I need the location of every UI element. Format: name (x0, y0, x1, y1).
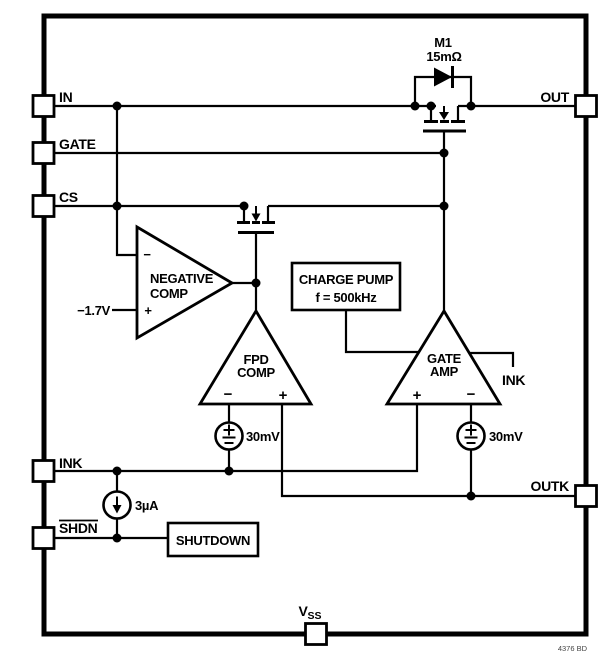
m1-body-arrow-head (439, 112, 449, 120)
gate-amp-label-2: AMP (430, 364, 459, 379)
shutdown-label: SHUTDOWN (176, 533, 250, 548)
fpd-comp-minus-sign: − (224, 386, 233, 403)
pin-shdn-pad (33, 528, 54, 549)
schematic-canvas: IN GATE CS INK SHDN OUT OUTK VSS M1 15mΩ… (0, 0, 611, 658)
fpd-comp-plus-sign: + (279, 387, 288, 404)
m1-resistance: 15mΩ (426, 49, 461, 64)
m1-designator: M1 (434, 35, 452, 50)
block-diagram: IN GATE CS INK SHDN OUT OUTK VSS M1 15mΩ… (0, 0, 611, 658)
pin-ink-pad (33, 461, 54, 482)
offset-right-value: 30mV (489, 429, 523, 444)
bias-current-value: 3µA (135, 498, 159, 513)
pin-shdn-label: SHDN (59, 520, 98, 536)
charge-pump-label-2: f = 500kHz (316, 290, 378, 305)
pin-in-label: IN (59, 89, 73, 105)
junction-dot (467, 102, 476, 111)
pin-ink-label: INK (59, 455, 82, 471)
body-diode-icon (434, 68, 452, 87)
reference-voltage-label: −1.7V (77, 303, 110, 318)
junction-dot (113, 202, 122, 211)
mosfet-m1 (423, 66, 466, 131)
junction-dot (225, 467, 234, 476)
junction-dot (467, 492, 476, 501)
wire-charge-pump-out (346, 310, 419, 352)
junction-dot (427, 102, 436, 111)
junction-dot (411, 102, 420, 111)
pin-in-pad (33, 96, 54, 117)
negative-comp-label-2: COMP (150, 286, 188, 301)
clamp-body-arrow-head (252, 214, 261, 222)
charge-pump-label-1: CHARGE PUMP (299, 272, 394, 287)
offset-left-value: 30mV (246, 429, 280, 444)
pin-gate-label: GATE (59, 136, 96, 152)
junction-dot (440, 149, 449, 158)
pin-gate-pad (33, 143, 54, 164)
junction-dot (252, 279, 261, 288)
junction-dot (440, 202, 449, 211)
fpd-comp-label-2: COMP (237, 365, 275, 380)
junction-dot (113, 102, 122, 111)
pin-vss-pad (306, 624, 327, 645)
wire-in-branch-to-comp (117, 106, 137, 255)
pin-cs-pad (33, 196, 54, 217)
negative-comp-plus-sign: + (144, 303, 152, 318)
gate-amp-minus-sign: − (467, 386, 476, 403)
pin-outk-pad (576, 486, 597, 507)
offset-source-left (216, 423, 243, 450)
negative-comp-minus-sign: − (143, 247, 151, 262)
gate-amp-plus-sign: + (413, 387, 422, 404)
offset-source-right (458, 423, 485, 450)
pin-outk-label: OUTK (531, 478, 570, 494)
pin-out-pad (576, 96, 597, 117)
current-source (104, 492, 131, 519)
chip-outline (44, 16, 586, 634)
junction-dot (113, 534, 122, 543)
junction-dot (113, 467, 122, 476)
junction-dot (240, 202, 249, 211)
pin-vss-label: VSS (298, 603, 321, 622)
pin-cs-label: CS (59, 189, 78, 205)
negative-comp-label-1: NEGATIVE (150, 271, 214, 286)
gate-amp-ink-label: INK (502, 372, 525, 388)
pin-out-label: OUT (540, 89, 569, 105)
figure-code: 4376 BD (558, 644, 588, 653)
